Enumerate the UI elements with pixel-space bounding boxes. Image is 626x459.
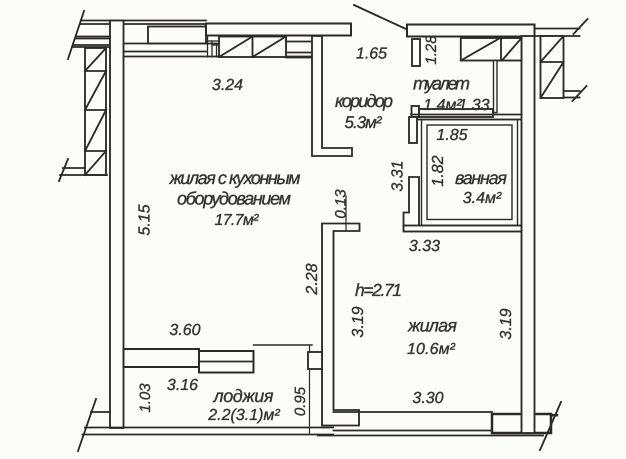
svg-text:1.03: 1.03 (137, 383, 154, 413)
svg-text:10.6м²: 10.6м² (407, 341, 456, 358)
svg-text:1.85: 1.85 (436, 127, 467, 144)
svg-text:3.60: 3.60 (169, 322, 200, 339)
svg-text:оборудованием: оборудованием (177, 189, 291, 209)
svg-text:h=2.71: h=2.71 (355, 280, 402, 300)
svg-text:2.2(3.1)м²: 2.2(3.1)м² (207, 407, 280, 424)
svg-text:17.7м²: 17.7м² (215, 212, 260, 229)
svg-text:1.82: 1.82 (430, 155, 447, 186)
svg-text:5.3м²: 5.3м² (345, 113, 383, 132)
svg-text:жилая: жилая (407, 316, 457, 336)
svg-text:коридор: коридор (335, 91, 393, 111)
svg-text:лоджия: лоджия (213, 386, 274, 406)
svg-text:3.19: 3.19 (498, 308, 515, 339)
svg-text:2.28: 2.28 (304, 263, 321, 295)
svg-text:0.13: 0.13 (333, 189, 350, 219)
svg-text:3.33: 3.33 (409, 238, 440, 255)
svg-text:3.19: 3.19 (350, 306, 367, 337)
svg-text:3.24: 3.24 (212, 77, 243, 94)
svg-text:0.95: 0.95 (292, 386, 309, 416)
svg-text:1.28: 1.28 (423, 35, 440, 65)
svg-text:3.4м²: 3.4м² (463, 190, 502, 207)
svg-text:3.31: 3.31 (390, 160, 407, 191)
svg-text:жилая с кухонным: жилая с кухонным (169, 168, 301, 188)
svg-text:3.16: 3.16 (167, 377, 198, 394)
svg-text:3.30: 3.30 (412, 390, 443, 407)
svg-text:5.15: 5.15 (137, 204, 154, 235)
svg-text:туалет: туалет (413, 74, 470, 94)
svg-text:1.4м²: 1.4м² (423, 97, 462, 114)
svg-text:1.33: 1.33 (458, 97, 489, 114)
svg-text:1.65: 1.65 (356, 46, 387, 63)
svg-text:ванная: ванная (455, 168, 507, 188)
